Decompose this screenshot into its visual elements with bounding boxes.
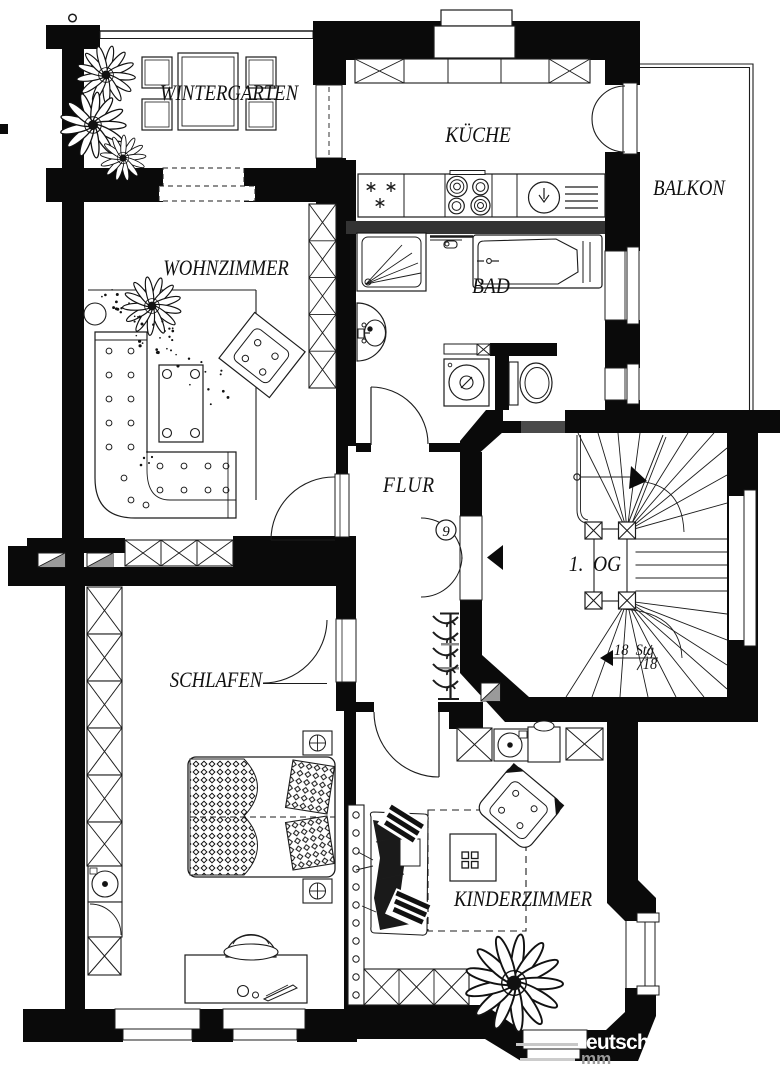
svg-text:WOHNZIMMER: WOHNZIMMER xyxy=(163,257,289,281)
svg-text:KÜCHE: KÜCHE xyxy=(444,123,511,147)
svg-text:FLUR: FLUR xyxy=(382,474,435,497)
svg-text:1. OG: 1. OG xyxy=(569,553,621,576)
svg-text:mm: mm xyxy=(581,1049,611,1068)
svg-text:SCHLAFEN: SCHLAFEN xyxy=(170,669,264,693)
svg-text:9: 9 xyxy=(442,524,450,540)
svg-text:BAD: BAD xyxy=(472,275,510,298)
svg-text:WINTERGARTEN: WINTERGARTEN xyxy=(160,82,299,106)
svg-text:BALKON: BALKON xyxy=(653,177,726,201)
svg-text:KINDERZIMMER: KINDERZIMMER xyxy=(453,888,592,912)
